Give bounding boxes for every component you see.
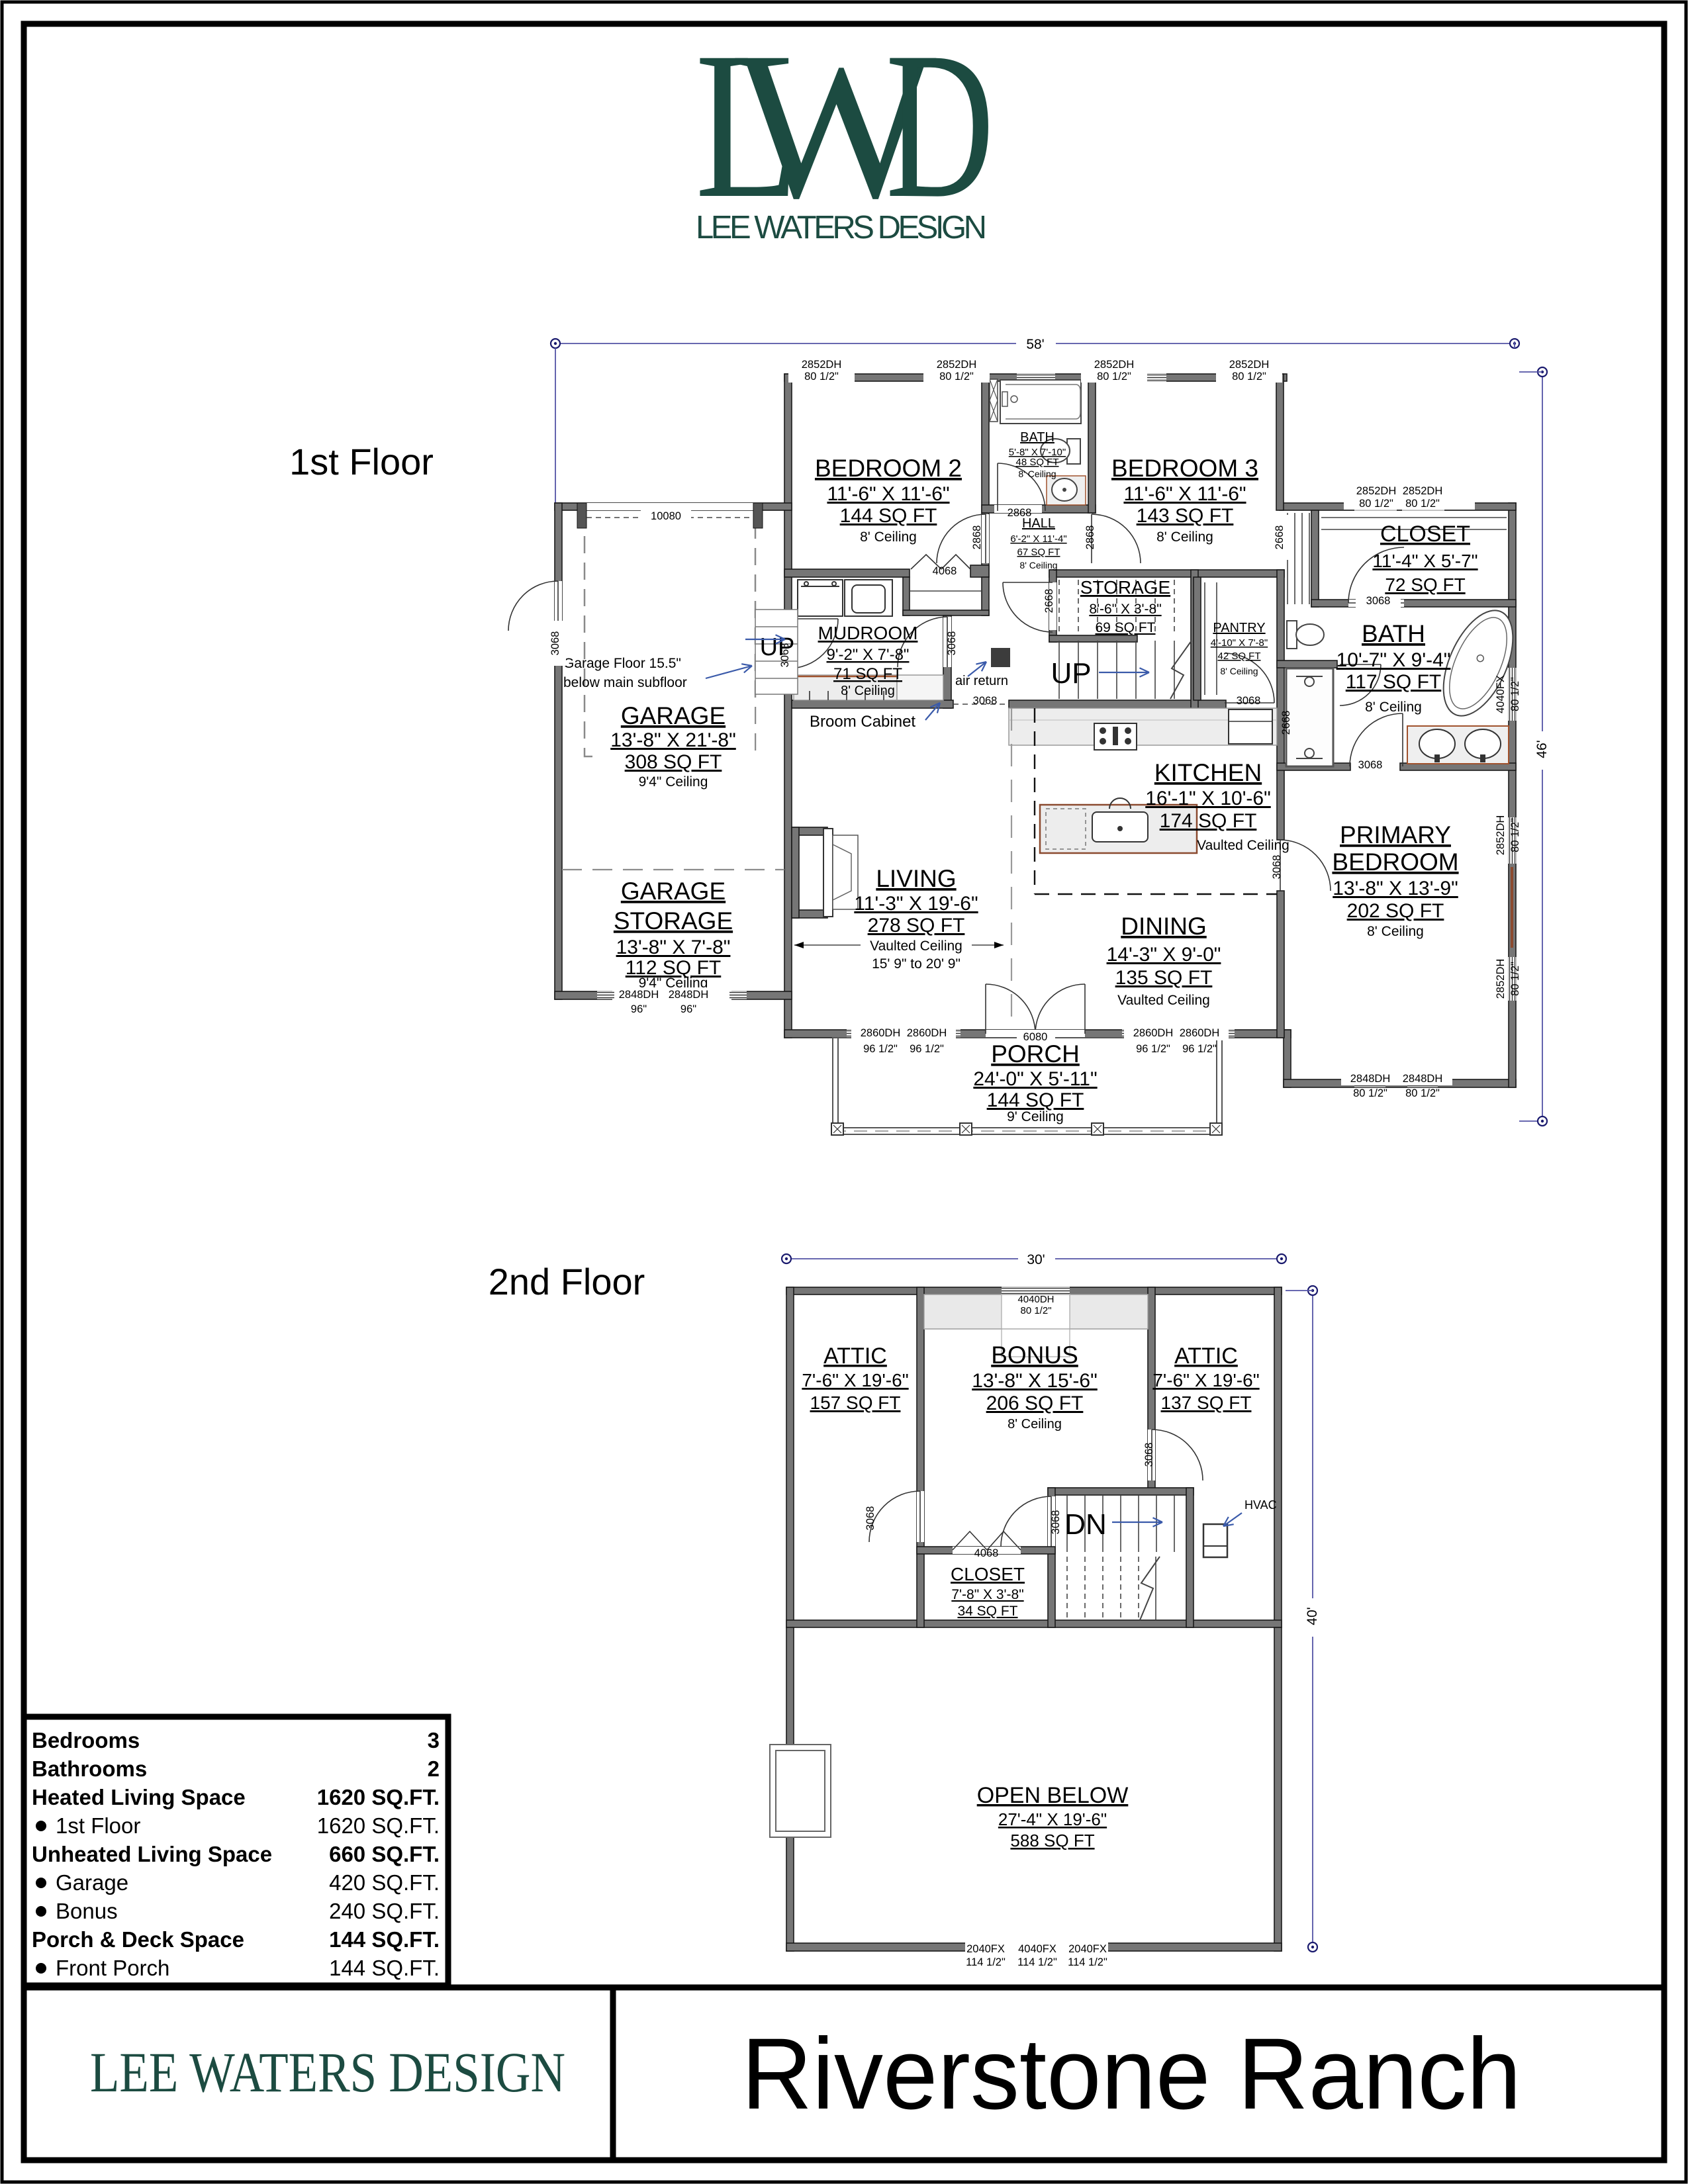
svg-text:2852DH: 2852DH <box>1229 359 1270 371</box>
svg-text:OPEN BELOW: OPEN BELOW <box>977 1783 1129 1808</box>
svg-text:2868: 2868 <box>1084 525 1096 550</box>
svg-text:11'-3" X 19'-6": 11'-3" X 19'-6" <box>854 893 978 915</box>
svg-text:below main subfloor: below main subfloor <box>563 675 687 690</box>
svg-text:80 1/2": 80 1/2" <box>1509 677 1521 711</box>
svg-text:14'-3" X 9'-0": 14'-3" X 9'-0" <box>1107 944 1221 966</box>
svg-text:3068: 3068 <box>1358 759 1383 771</box>
svg-text:DN: DN <box>1064 1508 1107 1541</box>
svg-text:2668: 2668 <box>1043 589 1055 614</box>
svg-text:PANTRY: PANTRY <box>1213 621 1265 635</box>
svg-text:8' Ceiling: 8' Ceiling <box>1008 1417 1062 1432</box>
svg-text:2860DH: 2860DH <box>907 1027 947 1039</box>
svg-text:80 1/2": 80 1/2" <box>1020 1305 1051 1316</box>
svg-text:69 SQ FT: 69 SQ FT <box>1095 620 1155 635</box>
svg-text:11'-6" X 11'-6": 11'-6" X 11'-6" <box>827 483 949 505</box>
svg-text:144 SQ.FT.: 144 SQ.FT. <box>329 1927 440 1952</box>
svg-text:144 SQ.FT.: 144 SQ.FT. <box>329 1956 440 1980</box>
svg-text:MUDROOM: MUDROOM <box>818 623 918 643</box>
svg-text:4068: 4068 <box>933 565 957 577</box>
svg-text:80 1/2": 80 1/2" <box>1097 371 1131 383</box>
svg-text:ATTIC: ATTIC <box>823 1343 887 1369</box>
svg-text:3068: 3068 <box>946 631 958 656</box>
svg-text:Bonus: Bonus <box>56 1899 118 1923</box>
svg-text:Unheated Living Space: Unheated Living Space <box>32 1842 272 1866</box>
svg-text:Bedrooms: Bedrooms <box>32 1728 140 1752</box>
svg-text:71 SQ FT: 71 SQ FT <box>833 665 902 683</box>
svg-text:1st Floor: 1st Floor <box>56 1813 140 1838</box>
svg-text:GARAGE: GARAGE <box>621 878 726 905</box>
svg-text:1620 SQ.FT.: 1620 SQ.FT. <box>317 1785 440 1809</box>
svg-text:9'-2" X 7'-8": 9'-2" X 7'-8" <box>827 646 910 664</box>
svg-text:9'4" Ceiling: 9'4" Ceiling <box>639 774 708 790</box>
svg-text:13'-8" X 15'-6": 13'-8" X 15'-6" <box>972 1370 1098 1392</box>
svg-text:10080: 10080 <box>651 510 681 522</box>
svg-text:PORCH: PORCH <box>991 1040 1080 1068</box>
svg-text:2860DH: 2860DH <box>861 1027 901 1039</box>
svg-text:Front Porch: Front Porch <box>56 1956 169 1980</box>
svg-text:8' Ceiling: 8' Ceiling <box>1019 560 1057 570</box>
svg-text:48 SQ FT: 48 SQ FT <box>1015 457 1058 468</box>
svg-text:420 SQ.FT.: 420 SQ.FT. <box>329 1870 440 1895</box>
svg-text:2668: 2668 <box>1274 525 1286 550</box>
svg-text:15' 9" to 20' 9": 15' 9" to 20' 9" <box>872 956 961 972</box>
svg-text:80 1/2": 80 1/2" <box>804 371 839 383</box>
svg-text:D: D <box>886 9 994 242</box>
svg-text:LEE WATERS DESIGN: LEE WATERS DESIGN <box>90 2040 565 2104</box>
svg-text:114 1/2": 114 1/2" <box>1068 1956 1107 1968</box>
svg-text:2848DH: 2848DH <box>619 989 659 1001</box>
svg-text:Porch & Deck Space: Porch & Deck Space <box>32 1927 244 1952</box>
svg-text:34 SQ FT: 34 SQ FT <box>957 1604 1017 1619</box>
svg-text:80 1/2": 80 1/2" <box>1509 962 1521 996</box>
svg-text:3: 3 <box>428 1728 440 1752</box>
svg-text:STORAGE: STORAGE <box>614 907 733 934</box>
svg-text:278 SQ FT: 278 SQ FT <box>868 915 965 936</box>
svg-text:Garage: Garage <box>56 1870 128 1895</box>
svg-text:Heated Living Space: Heated Living Space <box>32 1785 246 1809</box>
svg-text:UP: UP <box>1051 657 1091 690</box>
svg-text:144 SQ FT: 144 SQ FT <box>987 1089 1084 1111</box>
svg-text:LEE WATERS DESIGN: LEE WATERS DESIGN <box>696 210 987 246</box>
svg-text:206 SQ FT: 206 SQ FT <box>986 1392 1084 1414</box>
svg-text:80 1/2": 80 1/2" <box>1405 1087 1440 1099</box>
svg-text:2668: 2668 <box>1280 711 1292 735</box>
svg-text:2868: 2868 <box>1008 507 1032 519</box>
svg-text:8' Ceiling: 8' Ceiling <box>1365 700 1422 715</box>
svg-text:58': 58' <box>1026 337 1044 352</box>
svg-text:96 1/2": 96 1/2" <box>1136 1043 1170 1055</box>
svg-text:3068: 3068 <box>1237 695 1261 707</box>
svg-text:7'-6" X 19'-6": 7'-6" X 19'-6" <box>802 1370 908 1390</box>
svg-text:135 SQ FT: 135 SQ FT <box>1115 967 1213 989</box>
svg-text:2040FX: 2040FX <box>966 1943 1005 1955</box>
svg-text:PRIMARY: PRIMARY <box>1340 821 1451 848</box>
svg-text:80 1/2": 80 1/2" <box>1359 498 1393 510</box>
svg-text:2848DH: 2848DH <box>1403 1073 1443 1085</box>
svg-text:BEDROOM 3: BEDROOM 3 <box>1111 455 1258 482</box>
svg-text:1st Floor: 1st Floor <box>289 441 434 482</box>
svg-text:67 SQ FT: 67 SQ FT <box>1017 547 1060 558</box>
svg-text:3068: 3068 <box>779 643 791 668</box>
svg-text:4040FX: 4040FX <box>1495 675 1507 713</box>
svg-text:13'-8" X 13'-9": 13'-8" X 13'-9" <box>1333 878 1458 899</box>
svg-text:8' Ceiling: 8' Ceiling <box>841 684 895 698</box>
svg-text:96 1/2": 96 1/2" <box>910 1043 944 1055</box>
svg-text:80 1/2": 80 1/2" <box>939 371 974 383</box>
svg-text:3068: 3068 <box>1050 1510 1062 1535</box>
svg-text:2852DH: 2852DH <box>1495 815 1507 856</box>
svg-text:80 1/2": 80 1/2" <box>1509 818 1521 852</box>
svg-text:27'-4" X 19'-6": 27'-4" X 19'-6" <box>998 1809 1107 1829</box>
svg-text:KITCHEN: KITCHEN <box>1154 759 1262 786</box>
svg-text:9' Ceiling: 9' Ceiling <box>1007 1109 1064 1124</box>
svg-text:4068: 4068 <box>974 1547 999 1559</box>
svg-text:2852DH: 2852DH <box>1356 485 1397 497</box>
svg-text:Vaulted Ceiling: Vaulted Ceiling <box>1197 838 1289 853</box>
svg-text:2040FX: 2040FX <box>1068 1943 1107 1955</box>
svg-text:3068: 3068 <box>549 631 561 656</box>
svg-text:2: 2 <box>428 1756 440 1781</box>
svg-text:117 SQ FT: 117 SQ FT <box>1346 671 1442 693</box>
svg-text:240 SQ.FT.: 240 SQ.FT. <box>329 1899 440 1923</box>
svg-text:2868: 2868 <box>971 525 983 550</box>
svg-text:114 1/2": 114 1/2" <box>966 1956 1006 1968</box>
svg-text:BEDROOM 2: BEDROOM 2 <box>815 455 962 482</box>
svg-text:Garage Floor 15.5": Garage Floor 15.5" <box>563 656 681 671</box>
svg-text:8' Ceiling: 8' Ceiling <box>1367 924 1424 939</box>
svg-text:72 SQ FT: 72 SQ FT <box>1385 574 1465 595</box>
svg-text:80 1/2": 80 1/2" <box>1353 1087 1387 1099</box>
svg-text:air return: air return <box>955 674 1008 688</box>
svg-text:202 SQ FT: 202 SQ FT <box>1347 900 1444 922</box>
svg-text:2852DH: 2852DH <box>1403 485 1443 497</box>
svg-text:ATTIC: ATTIC <box>1174 1343 1238 1369</box>
svg-text:2848DH: 2848DH <box>669 989 709 1001</box>
svg-text:96 1/2": 96 1/2" <box>1182 1043 1217 1055</box>
svg-text:8'-6" X 3'-8": 8'-6" X 3'-8" <box>1089 602 1161 617</box>
svg-text:Bathrooms: Bathrooms <box>32 1756 147 1781</box>
svg-text:Riverstone Ranch: Riverstone Ranch <box>741 2017 1521 2130</box>
svg-text:4'-10" X 7'-8": 4'-10" X 7'-8" <box>1211 637 1268 649</box>
svg-text:137 SQ FT: 137 SQ FT <box>1161 1392 1252 1413</box>
svg-text:8' Ceiling: 8' Ceiling <box>1220 666 1258 676</box>
svg-text:1620 SQ.FT.: 1620 SQ.FT. <box>317 1813 440 1838</box>
svg-text:157 SQ FT: 157 SQ FT <box>810 1392 901 1413</box>
svg-text:2852DH: 2852DH <box>802 359 842 371</box>
svg-text:2860DH: 2860DH <box>1180 1027 1220 1039</box>
svg-text:2nd Floor: 2nd Floor <box>489 1261 645 1302</box>
svg-text:BATH: BATH <box>1020 430 1055 445</box>
svg-text:HVAC: HVAC <box>1244 1498 1277 1512</box>
svg-text:Vaulted Ceiling: Vaulted Ceiling <box>1117 993 1210 1008</box>
svg-text:2848DH: 2848DH <box>1350 1073 1391 1085</box>
svg-text:114 1/2": 114 1/2" <box>1017 1956 1057 1968</box>
svg-text:40': 40' <box>1305 1607 1320 1625</box>
svg-text:7'-6" X 19'-6": 7'-6" X 19'-6" <box>1152 1370 1259 1390</box>
svg-text:3068: 3068 <box>1271 855 1283 880</box>
svg-text:96 1/2": 96 1/2" <box>863 1043 898 1055</box>
svg-text:2852DH: 2852DH <box>1094 359 1135 371</box>
svg-text:10'-7" X 9'-4": 10'-7" X 9'-4" <box>1336 649 1451 671</box>
svg-text:3068: 3068 <box>1366 595 1391 607</box>
svg-text:Broom Cabinet: Broom Cabinet <box>810 713 915 731</box>
svg-text:CLOSET: CLOSET <box>1380 522 1470 547</box>
svg-text:144 SQ FT: 144 SQ FT <box>840 505 937 527</box>
svg-text:660 SQ.FT.: 660 SQ.FT. <box>329 1842 440 1866</box>
svg-text:13'-8" X 7'-8": 13'-8" X 7'-8" <box>616 936 731 958</box>
svg-text:11'-4" X 5'-7": 11'-4" X 5'-7" <box>1372 551 1477 571</box>
svg-text:8' Ceiling: 8' Ceiling <box>1156 529 1213 545</box>
svg-text:13'-8" X 21'-8": 13'-8" X 21'-8" <box>610 729 736 751</box>
svg-text:16'-1" X 10'-6": 16'-1" X 10'-6" <box>1145 788 1271 809</box>
svg-text:80 1/2": 80 1/2" <box>1232 371 1266 383</box>
svg-text:2852DH: 2852DH <box>1495 959 1507 999</box>
svg-text:2852DH: 2852DH <box>937 359 977 371</box>
svg-text:24'-0" X 5'-11": 24'-0" X 5'-11" <box>973 1068 1097 1090</box>
svg-text:143 SQ FT: 143 SQ FT <box>1137 505 1234 527</box>
svg-text:308 SQ FT: 308 SQ FT <box>625 751 722 773</box>
svg-text:30': 30' <box>1027 1252 1045 1267</box>
svg-text:6080: 6080 <box>1023 1031 1048 1043</box>
svg-text:CLOSET: CLOSET <box>951 1564 1025 1584</box>
svg-text:174 SQ FT: 174 SQ FT <box>1160 810 1257 832</box>
svg-text:4040DH: 4040DH <box>1017 1294 1054 1305</box>
svg-text:BATH: BATH <box>1362 620 1425 647</box>
svg-text:DINING: DINING <box>1121 913 1207 940</box>
svg-text:BEDROOM: BEDROOM <box>1332 848 1458 876</box>
svg-text:3068: 3068 <box>865 1506 876 1531</box>
svg-text:8' Ceiling: 8' Ceiling <box>1018 469 1056 479</box>
svg-text:3068: 3068 <box>1143 1443 1155 1467</box>
svg-text:Vaulted Ceiling: Vaulted Ceiling <box>870 938 962 954</box>
svg-text:8' Ceiling: 8' Ceiling <box>860 529 917 545</box>
svg-text:588 SQ FT: 588 SQ FT <box>1010 1831 1094 1850</box>
svg-text:80 1/2": 80 1/2" <box>1405 498 1440 510</box>
svg-text:96": 96" <box>631 1003 647 1015</box>
svg-text:GARAGE: GARAGE <box>621 702 726 729</box>
svg-text:42 SQ FT: 42 SQ FT <box>1217 651 1260 662</box>
svg-text:7'-8" X 3'-8": 7'-8" X 3'-8" <box>951 1587 1023 1602</box>
svg-text:3068: 3068 <box>973 695 998 707</box>
svg-text:46': 46' <box>1534 740 1550 758</box>
svg-text:2860DH: 2860DH <box>1133 1027 1174 1039</box>
svg-text:BONUS: BONUS <box>991 1342 1078 1369</box>
svg-text:96": 96" <box>680 1003 696 1015</box>
svg-text:11'-6" X 11'-6": 11'-6" X 11'-6" <box>1123 483 1246 505</box>
svg-text:4040FX: 4040FX <box>1018 1943 1056 1955</box>
svg-text:STORAGE: STORAGE <box>1080 577 1170 598</box>
svg-text:LIVING: LIVING <box>876 865 956 892</box>
svg-text:6'-2" X 11'-4": 6'-2" X 11'-4" <box>1010 533 1066 545</box>
